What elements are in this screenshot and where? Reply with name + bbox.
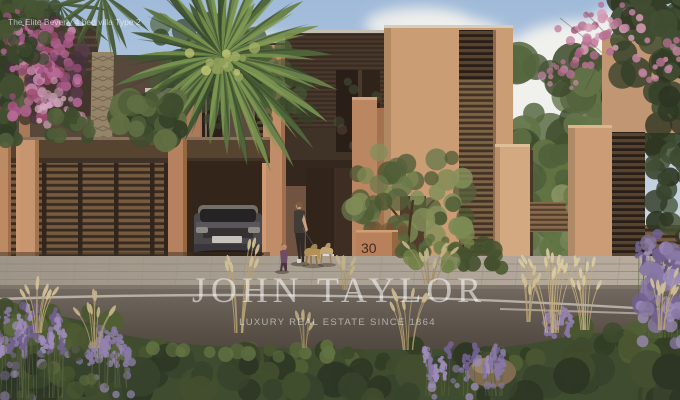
svg-text:LUXURY REAL ESTATE SINCE 1864: LUXURY REAL ESTATE SINCE 1864 [239,317,436,328]
svg-text:JOHN TAYLOR: JOHN TAYLOR [192,270,486,310]
svg-text:The Elite Beverly 4 bed villa: The Elite Beverly 4 bed villa Type 2 [8,17,141,27]
